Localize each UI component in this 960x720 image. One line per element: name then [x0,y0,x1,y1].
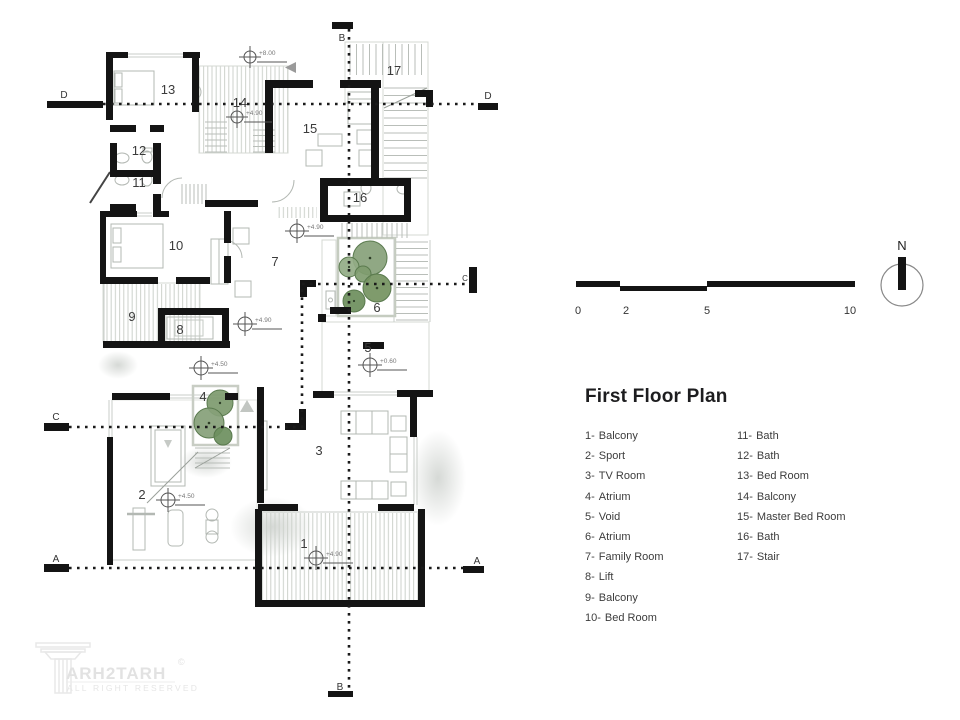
room-label-15: 15 [303,121,317,136]
room-label-13: 13 [161,82,175,97]
legend-item: 10-Bed Room [585,612,664,632]
room-label-1: 1 [300,536,307,551]
room-label-16: 16 [353,190,367,205]
legend-item: 1-Balcony [585,430,664,450]
legend-item: 7-Family Room [585,551,664,571]
legend-item-label: TV Room [599,470,645,482]
legend-item-number: 1- [585,430,595,442]
room-label-17: 17 [387,63,401,78]
legend-column-1: 1-Balcony 2-Sport 3-TV Room 4-Atrium 5-V… [585,430,664,632]
legend-item: 12-Bath [737,450,846,470]
legend-item: 9-Balcony [585,592,664,612]
section-label-a-right: A [474,556,481,567]
legend-item-label: Void [599,511,620,523]
elevation-value: +4.90 [307,224,324,231]
section-label-d-right: D [484,91,491,102]
legend-item: 14-Balcony [737,491,846,511]
room-label-2: 2 [138,487,145,502]
section-label-c-left: C [52,412,59,423]
legend-item: 2-Sport [585,450,664,470]
legend-item-number: 5- [585,511,595,523]
legend-item-label: Balcony [599,430,638,442]
legend-item: 15-Master Bed Room [737,511,846,531]
logo-copyright: © [178,657,185,667]
elevation-marker: +4.90 [285,219,334,243]
legend-item-number: 14- [737,491,753,503]
legend-item-label: Sport [599,450,625,462]
elevation-value: +0.60 [380,358,397,365]
atrium-trees-room6 [339,241,391,312]
legend-item-label: Atrium [599,491,631,503]
elevation-marker: +4.50 [189,356,238,380]
legend-item-number: 12- [737,450,753,462]
legend-item: 16-Bath [737,531,846,551]
legend-item-label: Bath [756,430,779,442]
legend-item: 5-Void [585,511,664,531]
room-label-5: 5 [364,340,371,355]
legend-item-number: 16- [737,531,753,543]
legend-item: 13-Bed Room [737,470,846,490]
north-arrow: N [881,238,923,306]
legend-item-label: Family Room [599,551,664,563]
legend-item-number: 9- [585,592,595,604]
north-needle [898,257,906,290]
logo: ARH2TARH © ALL RIGHT RESERVED [30,633,240,706]
scale-tick-2: 2 [623,305,629,317]
legend-item: 8-Lift [585,571,664,591]
legend-item-number: 4- [585,491,595,503]
scale-tick-10: 10 [844,305,856,317]
room-label-12: 12 [132,143,146,158]
legend-item-label: Balcony [599,592,638,604]
legend-item-number: 13- [737,470,753,482]
elevation-marker: +8.00 [239,46,287,68]
room-label-9: 9 [128,309,135,324]
elevation-marker: +0.60 [358,353,407,377]
room-label-10: 10 [169,238,183,253]
room-label-4: 4 [199,389,206,404]
logo-text: ARH2TARH [66,664,166,683]
elevation-value: +4.50 [211,361,228,368]
legend-item-number: 10- [585,612,601,624]
room-label-7: 7 [271,254,278,269]
room-label-3: 3 [315,443,322,458]
legend-item-number: 17- [737,551,753,563]
scale-bar: 0 2 5 10 [575,281,856,317]
scale-tick-5: 5 [704,305,710,317]
section-label-d-left: D [60,90,67,101]
floor-plan-drawing: D D B B C C A A +8.00 +4.90 +4.90 +4.90 [0,0,960,720]
legend-item: 3-TV Room [585,470,664,490]
legend-item-number: 2- [585,450,595,462]
legend-item-number: 8- [585,571,595,583]
scale-tick-0: 0 [575,305,581,317]
room-label-11: 11 [132,175,146,190]
elevation-marker: +4.50 [156,488,205,512]
floor-plan-page: D D B B C C A A +8.00 +4.90 +4.90 +4.90 [0,0,960,720]
logo-graphic: ARH2TARH © ALL RIGHT RESERVED [30,633,240,701]
legend-item-label: Bath [757,531,780,543]
page-title: First Floor Plan [585,386,728,408]
elevation-marker: +4.90 [233,312,282,336]
elevation-value: +4.90 [326,551,343,558]
legend-item: 6-Atrium [585,531,664,551]
legend-item-label: Master Bed Room [757,511,846,523]
section-label-c-right: C [462,274,468,283]
legend-item-number: 15- [737,511,753,523]
elevation-value: +8.00 [259,50,276,57]
section-label-a-left: A [53,554,60,565]
room-label-6: 6 [373,300,380,315]
legend-item-label: Bed Room [605,612,657,624]
legend-item-number: 6- [585,531,595,543]
room-label-14: 14 [233,95,247,110]
legend-item-label: Stair [757,551,780,563]
elevation-value: +4.90 [255,317,272,324]
legend-item-label: Bath [757,450,780,462]
elevation-value: +4.50 [178,493,195,500]
elevation-value: +4.90 [246,110,263,117]
logo-subtitle: ALL RIGHT RESERVED [67,683,199,693]
section-label-b-top: B [339,33,346,44]
legend-item-number: 7- [585,551,595,563]
legend-item-number: 3- [585,470,595,482]
north-label: N [897,238,906,253]
legend-column-2: 11-Bath 12-Bath 13-Bed Room 14-Balcony 1… [737,430,846,571]
legend-item: 4-Atrium [585,491,664,511]
legend-item-label: Lift [599,571,614,583]
legend-item-number: 11- [737,430,752,442]
legend-item-label: Balcony [757,491,796,503]
legend-item: 11-Bath [737,430,846,450]
legend-item-label: Bed Room [757,470,809,482]
legend-item: 17-Stair [737,551,846,571]
legend-item-label: Atrium [599,531,631,543]
section-label-b-bottom: B [337,682,344,693]
room-label-8: 8 [176,322,183,337]
